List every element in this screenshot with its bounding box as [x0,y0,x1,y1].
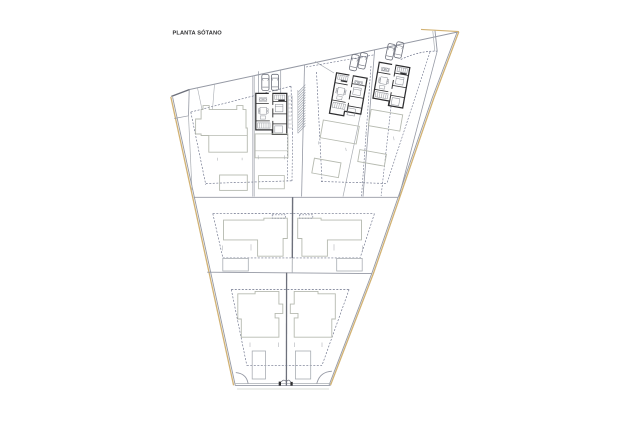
svg-text:PLANTA SÓTANO: PLANTA SÓTANO [173,29,223,37]
